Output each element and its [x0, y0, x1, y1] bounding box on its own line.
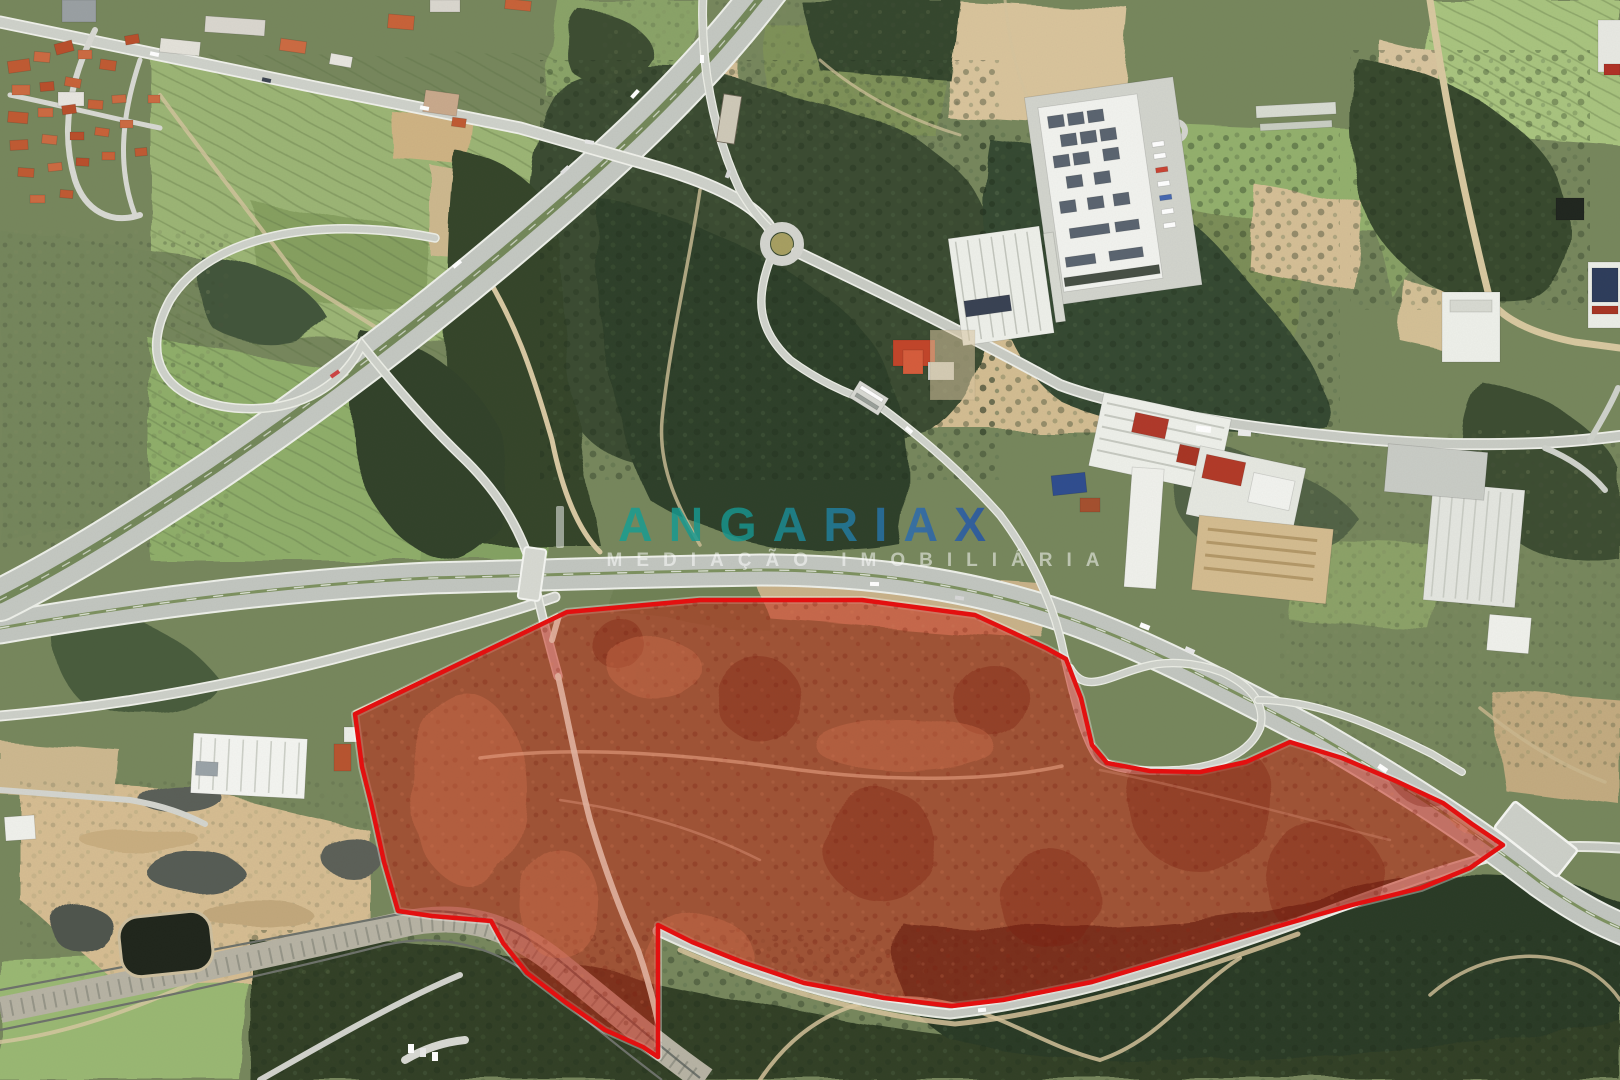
aerial-scene — [0, 0, 1620, 1080]
satellite-map: ANGARIAX MEDIAÇÃO IMOBILIÁRIA — [0, 0, 1620, 1080]
photo-grain — [0, 0, 1620, 1080]
